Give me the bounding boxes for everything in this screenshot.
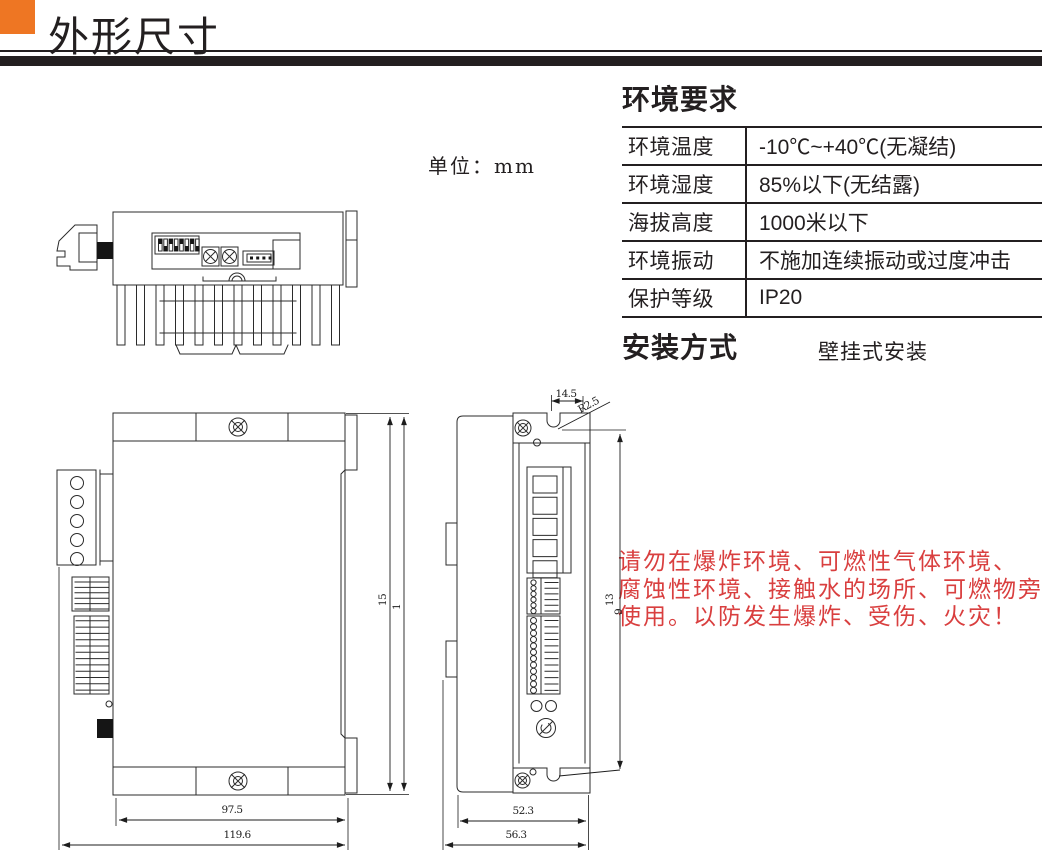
- dip-switch: [155, 236, 199, 254]
- pin-connector: [243, 251, 274, 265]
- dim-notch-offset: 14.5: [556, 388, 577, 400]
- row-value: 1000米以下: [746, 203, 1042, 241]
- screw-top: [229, 418, 247, 436]
- page-title: 外形尺寸: [48, 3, 220, 63]
- dimension-drawings: 15 1 97.5 119.6: [0, 190, 650, 858]
- connector-6-front: [527, 578, 560, 614]
- warning-line: 请勿在爆炸环境、可燃性气体环境、: [618, 548, 1042, 576]
- dim-front-height-a: 13: [604, 594, 616, 606]
- rotary-switches: [202, 247, 238, 266]
- dim-inner-width: 52.3: [513, 805, 534, 817]
- power-terminal-block: [57, 470, 113, 566]
- table-row: 环境温度 -10℃~+40℃(无凝结): [622, 127, 1042, 165]
- warning-line: 腐蚀性环境、接触水的场所、可燃物旁: [618, 576, 1042, 604]
- signal-connector-6: [72, 577, 109, 611]
- row-value: 不施加连续振动或过度冲击: [746, 241, 1042, 279]
- led-indicator: [546, 701, 557, 712]
- table-row: 环境振动 不施加连续振动或过度冲击: [622, 241, 1042, 279]
- front-view-drawing: 14.5 R2.5 13 9 52.3 56.3: [443, 388, 626, 850]
- table-row: 环境湿度 85%以下(无结露): [622, 165, 1042, 203]
- dim-height-b: 1: [391, 604, 403, 610]
- heatsink: [117, 285, 340, 354]
- signal-connector-12: [74, 616, 109, 694]
- environment-table: 环境温度 -10℃~+40℃(无凝结) 环境湿度 85%以下(无结露) 海拔高度…: [622, 126, 1042, 318]
- dim-front-height-b: 9: [613, 609, 625, 615]
- section-accent-square: [0, 0, 35, 34]
- table-row: 海拔高度 1000米以下: [622, 203, 1042, 241]
- row-label: 环境温度: [622, 127, 746, 165]
- screw-top: [515, 420, 531, 436]
- row-value: IP20: [746, 279, 1042, 317]
- environment-requirements-title: 环境要求: [622, 78, 738, 118]
- connector-plug: [97, 242, 113, 259]
- unit-label: 单位：mm: [428, 150, 536, 179]
- warning-line: 使用。以防发生爆炸、受伤、火灾！: [618, 603, 1042, 631]
- table-row: 保护等级 IP20: [622, 279, 1042, 317]
- screw-bottom: [515, 773, 530, 788]
- dim-height-a: 15: [377, 594, 389, 606]
- dim-front-total-width: 56.3: [506, 829, 527, 841]
- installation-method-value: 壁挂式安装: [818, 336, 928, 366]
- dim-total-width: 119.6: [223, 829, 251, 841]
- warning-text: 请勿在爆炸环境、可燃性气体环境、 腐蚀性环境、接触水的场所、可燃物旁 使用。以防…: [618, 548, 1042, 631]
- led-indicator: [531, 701, 542, 712]
- side-view-drawing: 15 1 97.5 119.6: [57, 413, 409, 850]
- top-view-drawing: [57, 211, 357, 354]
- datasheet-page: 外形尺寸 单位：mm 环境要求 环境温度 -10℃~+40℃(无凝结) 环境湿度…: [0, 0, 1042, 858]
- dim-body-width: 97.5: [222, 804, 243, 816]
- potentiometer: [537, 719, 556, 738]
- header-rule-thin: [0, 50, 1042, 52]
- header-rule-thick: [0, 56, 1042, 66]
- row-value: 85%以下(无结露): [746, 165, 1042, 203]
- power-terminal-front: [527, 467, 571, 578]
- screw-bottom: [229, 772, 247, 790]
- row-value: -10℃~+40℃(无凝结): [746, 127, 1042, 165]
- side-plug: [97, 719, 113, 738]
- connector-12-front: [527, 616, 560, 694]
